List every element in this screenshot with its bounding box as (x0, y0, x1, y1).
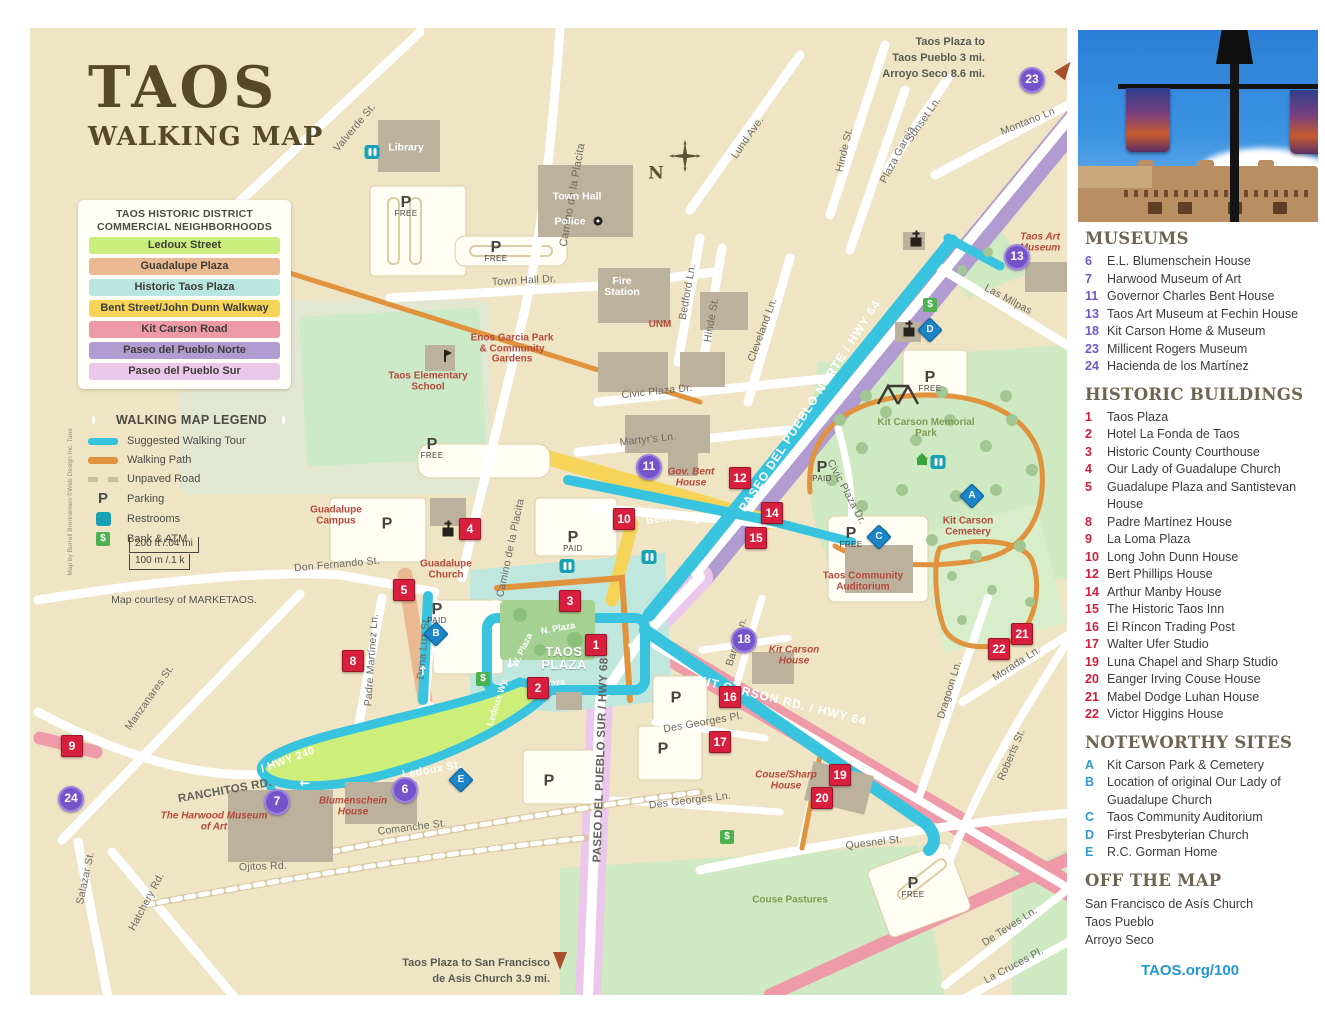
park-shelter-icon (917, 459, 927, 465)
noteworthy-row: BLocation of original Our Lady of Guadal… (1085, 774, 1322, 809)
offmap-title: OFF THE MAP (1085, 871, 1322, 890)
restroom-icon-4 (931, 455, 946, 469)
bank-icon-1: $ (923, 298, 937, 312)
historic-row: 3Historic County Courthouse (1085, 444, 1322, 462)
legend-band-norte: Paseo del Pueblo Norte (89, 342, 280, 359)
marker-9: 9 (61, 735, 83, 757)
sidebar: MUSEUMS 6E.L. Blumenschein House 7Harwoo… (1085, 229, 1322, 979)
noteworthy-row: ER.C. Gorman Home (1085, 844, 1322, 862)
restroom-icon-1 (365, 145, 380, 159)
place-kit-carson-park: Kit Carson Memorial Park (876, 417, 976, 439)
historic-row: 22Victor Higgins House (1085, 706, 1322, 724)
place-town-hall: Town Hall (553, 192, 602, 203)
legend-band-ledoux: Ledoux Street (89, 237, 280, 254)
marker-14: 14 (761, 502, 783, 524)
police-badge-icon (594, 217, 603, 226)
museum-row: 18Kit Carson Home & Museum (1085, 323, 1322, 341)
tour-arrow-up-icon: ↑ (418, 666, 429, 679)
marker-11: 11 (636, 454, 662, 480)
legend-band-plaza: Historic Taos Plaza (89, 279, 280, 296)
bank-icon-2: $ (476, 672, 490, 686)
historic-row: 15The Historic Taos Inn (1085, 601, 1322, 619)
parking-6: P (658, 743, 669, 756)
restroom-icon-3 (642, 550, 657, 564)
marker-24: 24 (58, 786, 84, 812)
historic-row: 10Long John Dunn House (1085, 549, 1322, 567)
tour-swatch-icon (88, 438, 118, 445)
lamp-lantern (1216, 30, 1253, 64)
legend-band-guadalupe: Guadalupe Plaza (89, 258, 280, 275)
museum-row: 7Harwood Museum of Art (1085, 271, 1322, 289)
district-legend-header2: COMMERCIAL NEIGHBORHOODS (78, 221, 291, 234)
parking-free-5: PFREE (840, 527, 863, 549)
marker-3: 3 (559, 590, 581, 612)
museum-row: 24Hacienda de los Martínez (1085, 358, 1322, 376)
tour-arrow-left-icon: ← (695, 516, 706, 529)
historic-row: 12Bert Phillips House (1085, 566, 1322, 584)
place-unm: UNM (649, 320, 672, 331)
legend-item-restrooms: Restrooms (88, 512, 288, 526)
marker-10: 10 (613, 508, 635, 530)
taos-org-link[interactable]: TAOS.org/100 (1141, 963, 1322, 979)
courtesy-note: Map courtesy of MARKETAOS. (104, 594, 264, 606)
parking-4: P (382, 518, 393, 531)
place-kit-carson-cemetery: Kit Carson Cemetery (928, 517, 1008, 538)
bank-icon-3: $ (720, 830, 734, 844)
offmap-row: San Francisco de Asís Church (1085, 895, 1322, 913)
historic-row: 17Walter Ufer Studio (1085, 636, 1322, 654)
tour-arrow-both-icon: ↔ (628, 640, 639, 653)
restroom-icon (88, 512, 118, 526)
taos-walking-map-page: TAOS WALKING MAP TAOS HISTORIC DISTRICT … (0, 0, 1325, 1024)
historic-row: 9La Loma Plaza (1085, 531, 1322, 549)
legend-band-bent: Bent Street/John Dunn Walkway (89, 300, 280, 317)
marker-23: 23 (1019, 67, 1045, 93)
marker-8: 8 (342, 650, 364, 672)
historic-title: HISTORIC BUILDINGS (1085, 385, 1322, 404)
marker-20: 20 (811, 787, 833, 809)
historic-row: 4Our Lady of Guadalupe Church (1085, 461, 1322, 479)
parking-icon: P (88, 492, 118, 506)
marker-7: 7 (264, 789, 290, 815)
path-swatch-icon (88, 457, 118, 464)
banner-right (1290, 90, 1318, 154)
offmap-row: Taos Pueblo (1085, 913, 1322, 931)
south-arrow-icon (553, 952, 567, 970)
place-library: Library (388, 143, 424, 154)
church-icon-2 (904, 328, 915, 337)
marker-1: 1 (585, 634, 607, 656)
legend-item-tour: Suggested Walking Tour (88, 435, 288, 448)
banner-left (1126, 88, 1170, 152)
tour-arrow-left3-icon: ← (300, 778, 311, 791)
marker-13: 13 (1004, 244, 1030, 270)
museum-row: 13Taos Art Museum at Fechin House (1085, 306, 1322, 324)
historic-row: 20Eanger Irving Couse House (1085, 671, 1322, 689)
marker-18: 18 (731, 627, 757, 653)
adobe-building-left (1078, 166, 1152, 188)
map-title: TAOS WALKING MAP (88, 58, 323, 152)
place-community-auditorium: Taos Community Auditorium (818, 572, 908, 593)
parking-free-6: PFREE (902, 877, 925, 899)
marker-2: 2 (527, 677, 549, 699)
noteworthy-row: CTaos Community Auditorium (1085, 809, 1322, 827)
marker-4: 4 (459, 518, 481, 540)
historic-row: 2Hotel La Fonda de Taos (1085, 426, 1322, 444)
noteworthy-title: NOTEWORTHY SITES (1085, 733, 1322, 752)
distance-note-south: Taos Plaza to San Franciscode Asis Churc… (390, 955, 550, 987)
legend-band-kitcarson: Kit Carson Road (89, 321, 280, 338)
historic-row: 1Taos Plaza (1085, 409, 1322, 427)
parking-7: P (544, 775, 555, 788)
museums-title: MUSEUMS (1085, 229, 1322, 248)
historic-row: 16El Ríncon Trading Post (1085, 619, 1322, 637)
lamp-cap (1228, 30, 1241, 32)
marker-19: 19 (829, 764, 851, 786)
marker-16: 16 (719, 686, 741, 708)
museum-row: 23Millicent Rogers Museum (1085, 341, 1322, 359)
legend-band-sur: Paseo del Pueblo Sur (89, 363, 280, 380)
church-icon-3 (443, 528, 454, 537)
school-flag-icon (444, 350, 446, 362)
place-guadalupe-church: Guadalupe Church (406, 560, 486, 581)
noteworthy-row: AKit Carson Park & Cemetery (1085, 757, 1322, 775)
place-fire-station: Fire Station (600, 276, 644, 298)
tour-arrow-down-icon: ↓ (505, 658, 516, 671)
marker-21: 21 (1011, 623, 1033, 645)
street-ojitos: Ojitos Rd. (239, 861, 287, 874)
historic-row: 8Padre Martínez House (1085, 514, 1322, 532)
historic-row: 5Guadalupe Plaza and Santistevan House (1085, 479, 1322, 514)
compass-north-label: N (648, 166, 664, 183)
map-title-line2: WALKING MAP (88, 122, 323, 152)
place-police: Police (555, 217, 586, 228)
place-enos-garcia-park: Enos Garcia Park & Community Gardens (466, 333, 558, 365)
noteworthy-row: DFirst Presbyterian Church (1085, 827, 1322, 845)
map-title-line1: TAOS (88, 58, 323, 118)
legend-item-parking: P Parking (88, 492, 288, 506)
marker-22: 22 (988, 638, 1010, 660)
district-legend-header1: TAOS HISTORIC DISTRICT (78, 208, 291, 221)
parking-paid-2: PPAID (563, 531, 583, 553)
banner-arm-right (1238, 84, 1318, 89)
marker-6: 6 (392, 777, 418, 803)
walking-map-legend: WALKING MAP LEGEND Suggested Walking Tou… (88, 413, 288, 552)
scale-bottom: 100 m /.1 k (129, 554, 190, 570)
place-taos-elementary: Taos Elementary School (373, 372, 483, 393)
marker-12: 12 (729, 467, 751, 489)
marker-5: 5 (393, 579, 415, 601)
scale-top: 200 ft /.04 mi (129, 537, 199, 553)
place-blumenschein-house: Blumenschein House (303, 797, 403, 818)
place-guadalupe-campus: Guadalupe Campus (296, 506, 376, 527)
unpaved-swatch-icon (88, 477, 118, 482)
place-kit-carson-house: Kit Carson House (754, 646, 834, 667)
parking-5: P (671, 692, 682, 705)
district-legend: TAOS HISTORIC DISTRICT COMMERCIAL NEIGHB… (78, 200, 291, 389)
restroom-icon-2 (560, 559, 575, 573)
tour-arrow-left2-icon: ← (492, 597, 503, 610)
legend-item-path: Walking Path (88, 454, 288, 467)
marker-15: 15 (745, 527, 767, 549)
attribution-note: Map by Burrell Brennemen ©Web Design Inc… (67, 417, 75, 587)
walking-legend-title: WALKING MAP LEGEND (116, 413, 288, 427)
museum-row: 11Governor Charles Bent House (1085, 288, 1322, 306)
place-couse-pastures: Couse Pastures (752, 895, 828, 906)
legend-item-unpaved: Unpaved Road (88, 473, 288, 486)
distance-note-north: Taos Plaza toTaos Pueblo 3 mi.Arroyo Sec… (830, 34, 985, 82)
parking-free-1: PFREE (395, 196, 418, 218)
marker-17: 17 (709, 731, 731, 753)
bank-atm-icon: $ (88, 532, 118, 546)
museum-row: 6E.L. Blumenschein House (1085, 253, 1322, 271)
parking-free-4: PFREE (919, 371, 942, 393)
church-icon-1 (911, 238, 922, 247)
historic-row: 19Luna Chapel and Sharp Studio (1085, 654, 1322, 672)
parking-paid-1: PPAID (812, 461, 832, 483)
offmap-row: Arroyo Seco (1085, 931, 1322, 949)
parking-free-2: PFREE (485, 241, 508, 263)
lamp-post (1230, 40, 1239, 222)
parking-free-3: PFREE (421, 438, 444, 460)
place-gov-bent-house: Gov. Bent House (656, 468, 726, 489)
historic-row: 14Arthur Manby House (1085, 584, 1322, 602)
compass-star-icon (669, 140, 701, 172)
scale-bar: 200 ft /.04 mi 100 m /.1 k (129, 537, 199, 570)
historic-row: 21Mabel Dodge Luhan House (1085, 689, 1322, 707)
parking-paid-3: PPAID (427, 603, 447, 625)
street-lamp-photo (1078, 30, 1318, 222)
place-harwood-museum: The Harwood Museum of Art (159, 812, 269, 833)
